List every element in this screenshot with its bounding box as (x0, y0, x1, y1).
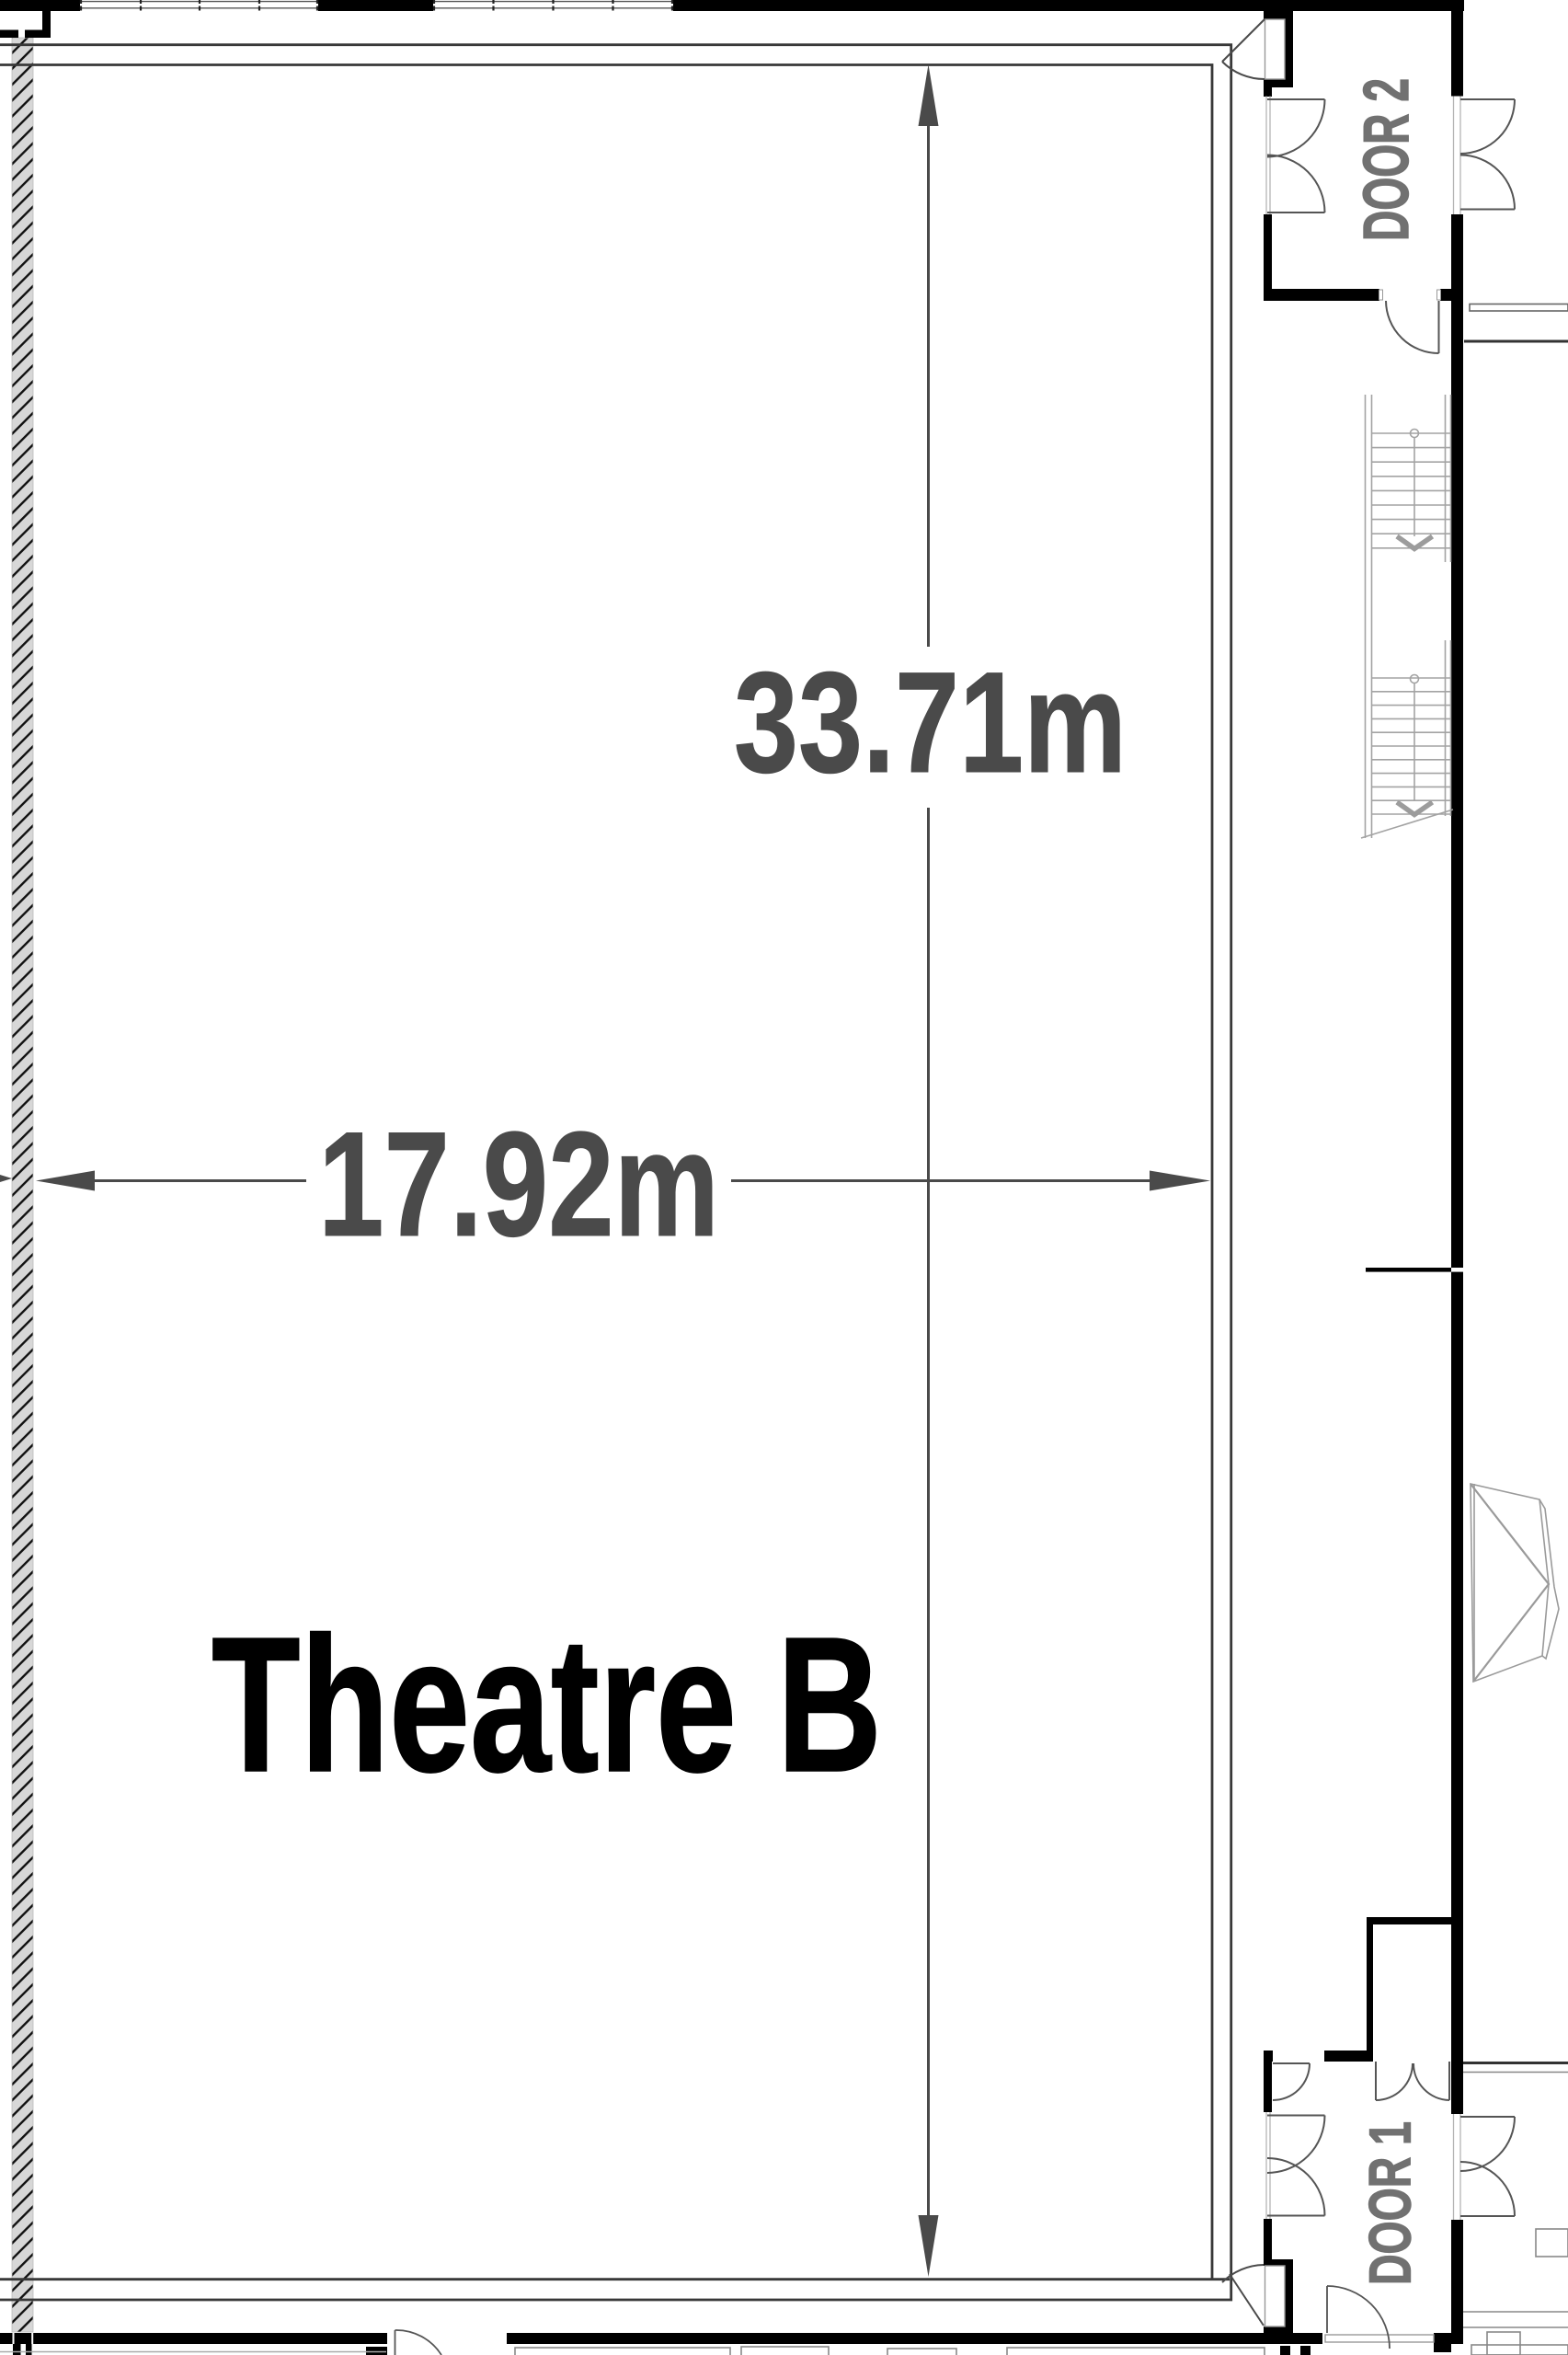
svg-text:DOOR 2: DOOR 2 (1350, 78, 1422, 241)
svg-text:Theatre B: Theatre B (212, 1598, 882, 1812)
svg-text:17.92m: 17.92m (318, 1101, 719, 1268)
svg-text:33.71m: 33.71m (734, 643, 1127, 803)
svg-text:DOOR 1: DOOR 1 (1357, 2121, 1424, 2285)
